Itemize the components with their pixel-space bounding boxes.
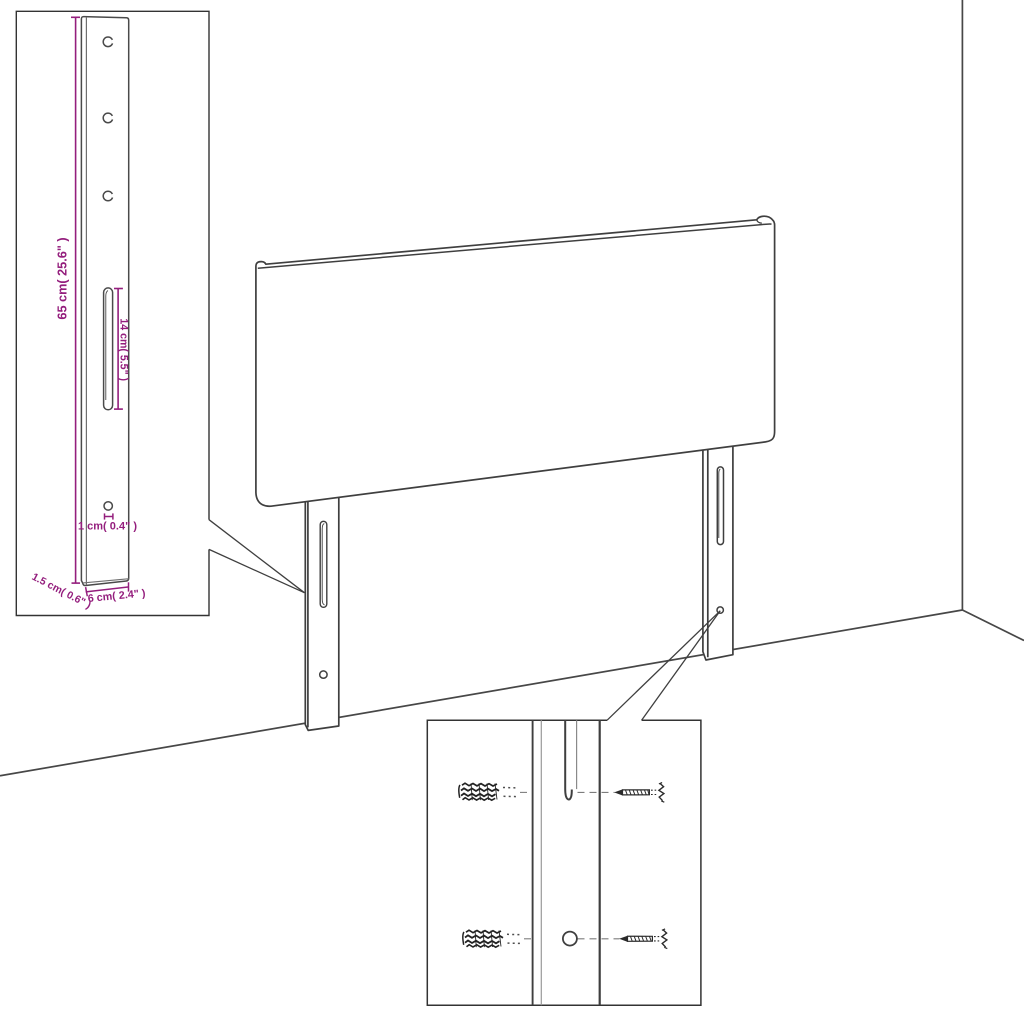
svg-text:14 cm( 5.5" ): 14 cm( 5.5" ) (117, 318, 129, 381)
svg-text:1 cm( 0.4" ): 1 cm( 0.4" ) (78, 521, 137, 533)
svg-text:65 cm( 25.6" ): 65 cm( 25.6" ) (56, 237, 70, 319)
